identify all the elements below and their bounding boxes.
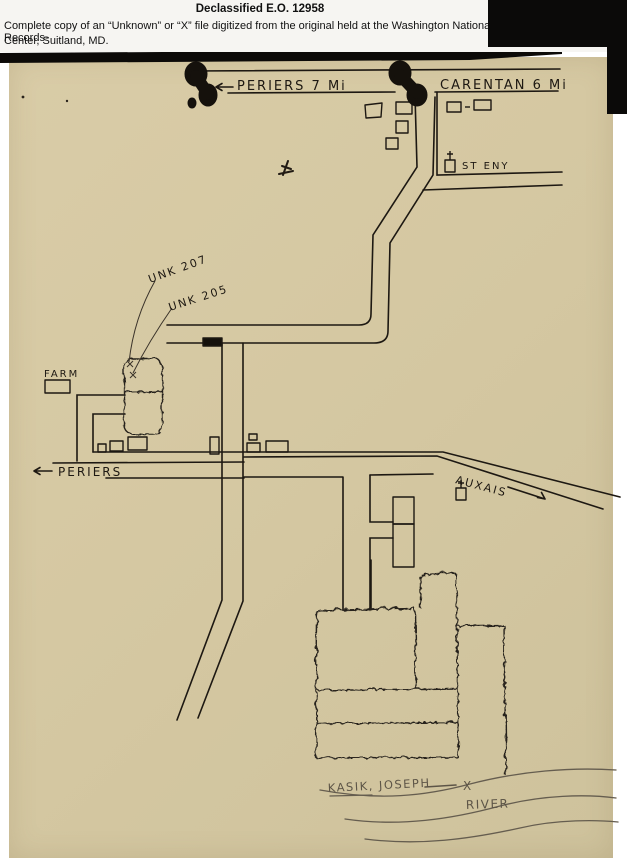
redaction-edge-strip bbox=[607, 0, 627, 114]
scanned-map-page: Declassified E.O. 12958 Complete copy of… bbox=[0, 0, 627, 868]
header-title: Declassified E.O. 12958 bbox=[0, 3, 520, 15]
header-note-line2: Center, Suitland, MD. bbox=[4, 35, 504, 47]
tan-paper bbox=[9, 57, 613, 858]
